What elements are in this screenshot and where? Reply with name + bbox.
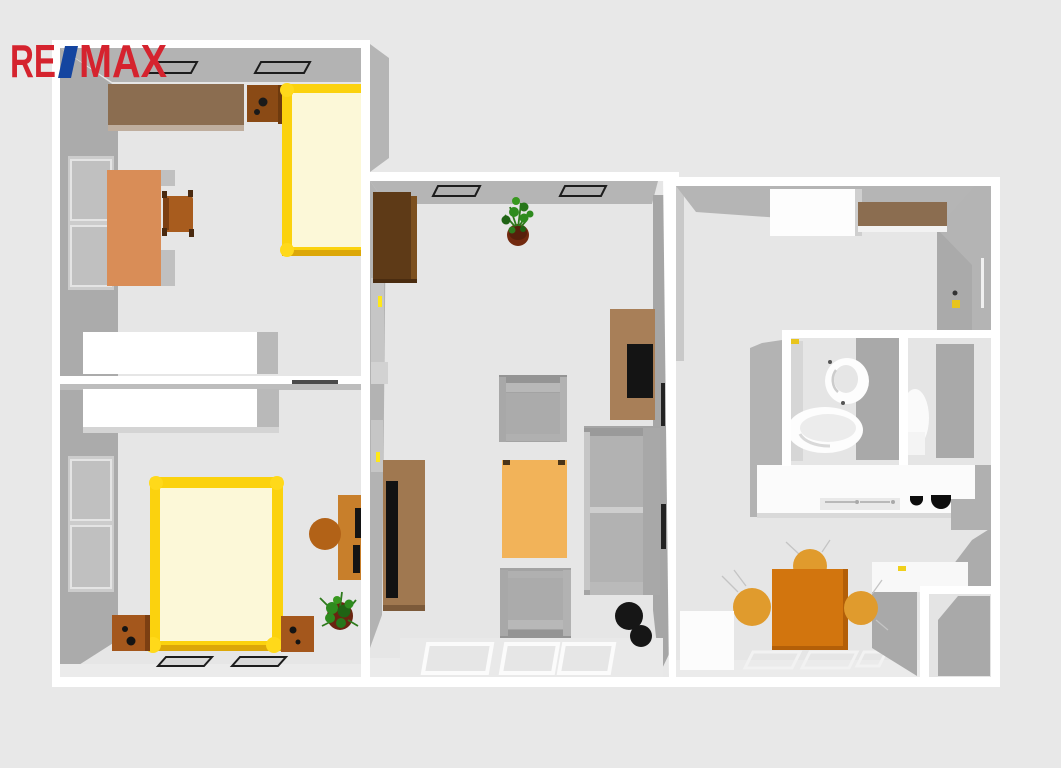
svg-text:RE: RE xyxy=(10,35,56,87)
svg-text:MAX: MAX xyxy=(79,35,167,87)
